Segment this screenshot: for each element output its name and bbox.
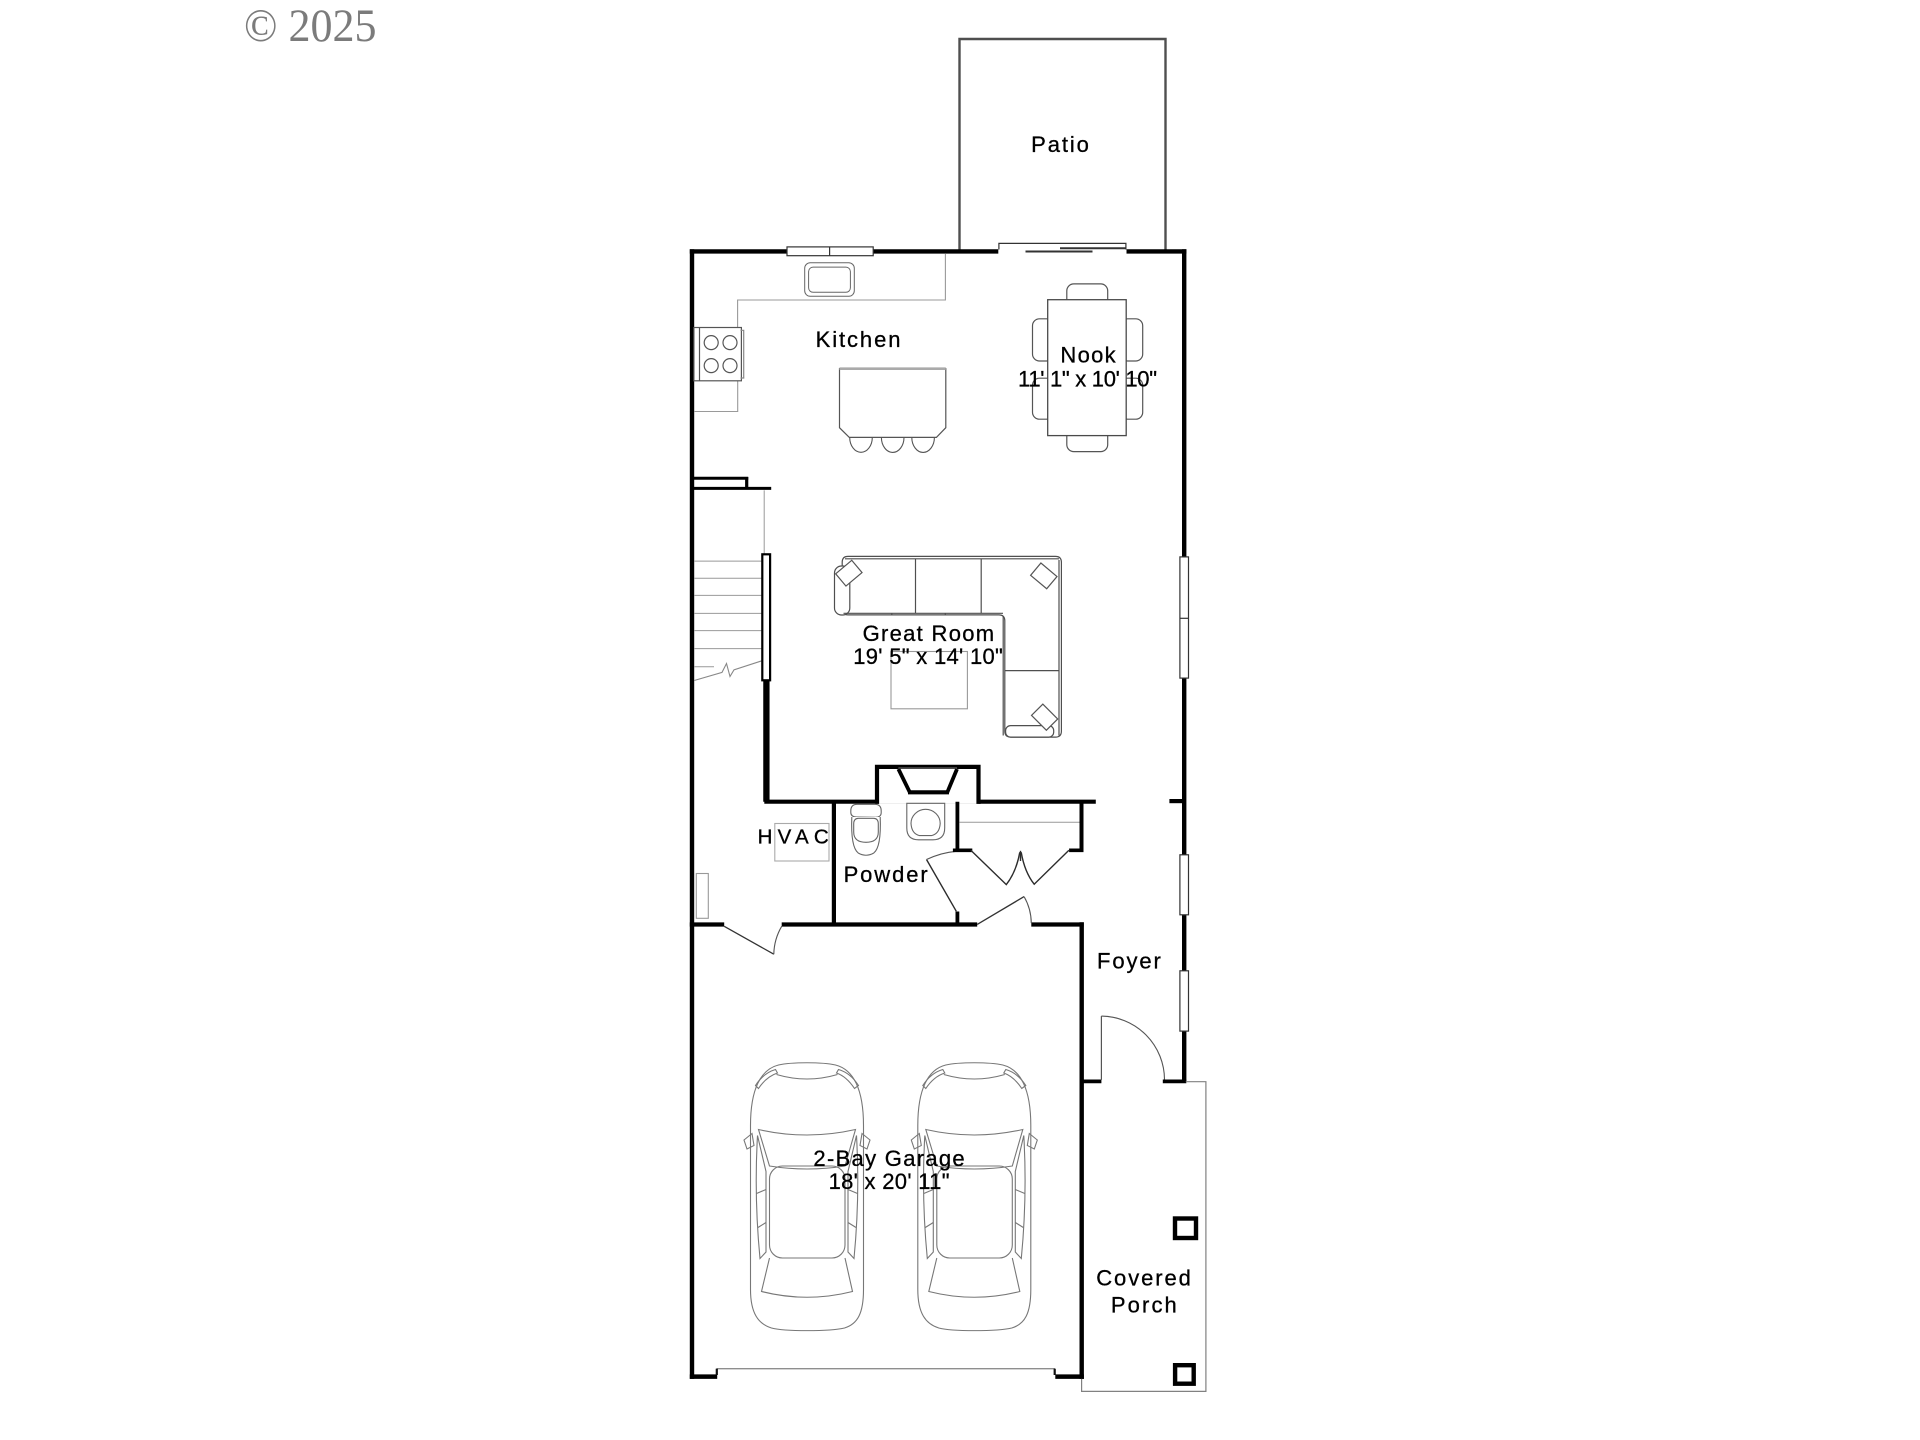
svg-text:© 2025: © 2025	[244, 0, 377, 52]
svg-text:2-Bay Garage: 2-Bay Garage	[813, 1146, 966, 1171]
svg-text:18' x 20' 11": 18' x 20' 11"	[829, 1169, 950, 1194]
svg-text:Patio: Patio	[1031, 132, 1091, 157]
svg-text:Foyer: Foyer	[1097, 949, 1163, 974]
svg-text:Powder: Powder	[844, 862, 930, 887]
svg-text:11' 1" x 10' 10": 11' 1" x 10' 10"	[1018, 366, 1157, 391]
svg-text:Covered: Covered	[1096, 1266, 1192, 1291]
svg-text:HVAC: HVAC	[758, 825, 834, 848]
svg-text:19' 5" x 14' 10": 19' 5" x 14' 10"	[853, 644, 1003, 669]
svg-text:Nook: Nook	[1060, 342, 1117, 367]
svg-text:Kitchen: Kitchen	[816, 327, 903, 352]
svg-text:Porch: Porch	[1111, 1293, 1179, 1318]
svg-text:Great Room: Great Room	[863, 621, 996, 646]
